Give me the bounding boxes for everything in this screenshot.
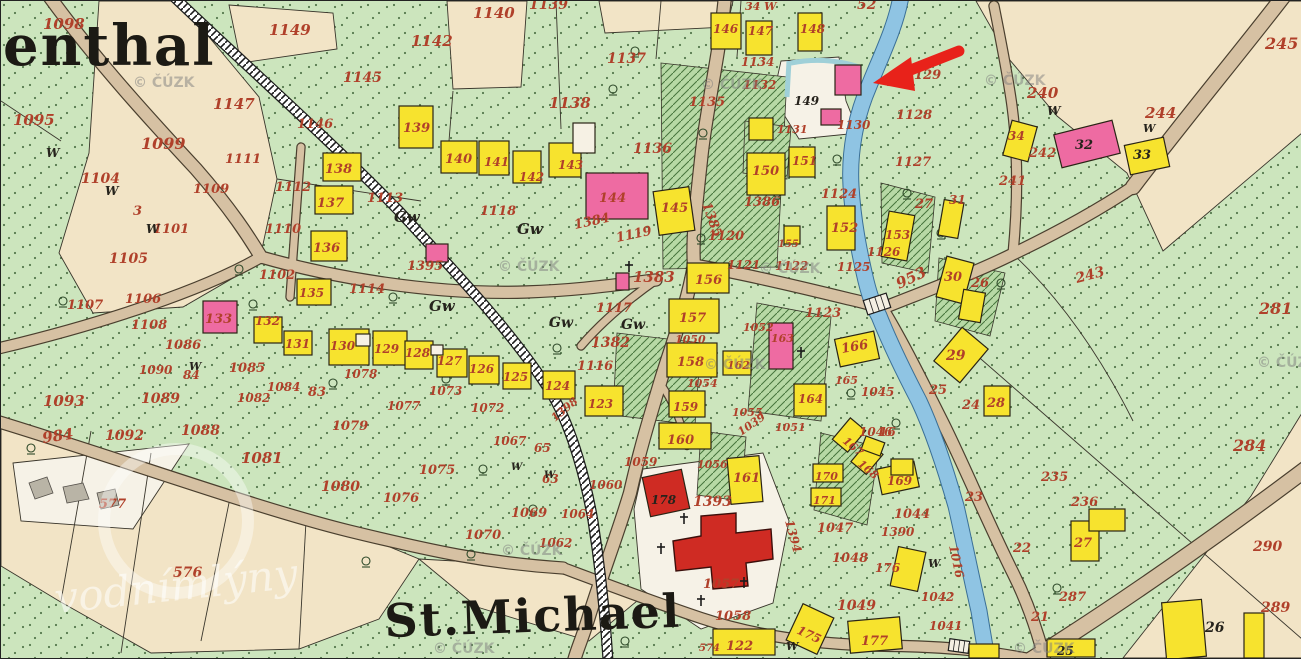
parcel-label: 1390 (881, 525, 915, 539)
parcel-label: 140 (445, 152, 472, 167)
parcel-label: 241 (998, 174, 1026, 189)
parcel-label: 1079 (332, 419, 368, 434)
copyright-watermark: © ČÚZK (759, 259, 822, 277)
parcel-label: 1082 (237, 391, 270, 405)
parcel-label: 129 (374, 342, 400, 356)
parcel-label: 176 (875, 561, 901, 575)
parcel-label: 1393 (693, 494, 732, 510)
parcel-label: Gw (621, 317, 646, 333)
parcel-label: 289 (1260, 600, 1290, 616)
building (1089, 509, 1125, 531)
parcel-label: 242 (1028, 146, 1056, 161)
parcel-label: 1145 (343, 70, 382, 86)
parcel-label: 27 (1073, 536, 1092, 551)
parcel-label: 127 (437, 354, 463, 368)
parcel-label: 144 (599, 191, 626, 206)
parcel-label: W (511, 462, 524, 473)
parcel-label: 1105 (109, 251, 148, 267)
parcel-label: 1128 (896, 108, 932, 123)
parcel-label: 1059 (624, 455, 658, 469)
parcel-label: 1116 (577, 359, 613, 374)
parcel-label: 1085 (229, 361, 265, 376)
building (356, 334, 370, 346)
parcel-label: W (46, 146, 61, 160)
parcel-label: 1136 (633, 141, 672, 157)
parcel-label: W (786, 640, 800, 653)
parcel-label: 26 (970, 276, 989, 291)
parcel-label: 1086 (165, 338, 201, 353)
parcel-label: 1124 (821, 187, 857, 202)
parcel-label: 1127 (895, 155, 931, 170)
building (969, 644, 999, 658)
parcel-label: 1055 (732, 406, 763, 419)
parcel-label: 1140 (473, 4, 515, 22)
parcel-label: 1057 (703, 577, 739, 592)
parcel-label: 3 (133, 204, 142, 219)
parcel-label: W (105, 184, 120, 198)
parcel-label: 1113 (367, 191, 403, 206)
parcel-label: 28 (986, 396, 1005, 411)
parcel-label: 1147 (213, 95, 255, 113)
parcel-label: 1056 (697, 458, 728, 471)
parcel-label: W (189, 360, 203, 373)
parcel-label: 141 (484, 155, 509, 169)
copyright-watermark: © ČÚZK (701, 75, 764, 93)
parcel-label: 178 (651, 493, 677, 507)
parcel-label: 1080 (321, 479, 360, 495)
parcel-label: 1112 (275, 180, 311, 195)
parcel-label: 1130 (837, 118, 871, 132)
parcel-label: 65 (534, 441, 551, 455)
parcel-label: 1117 (596, 301, 632, 316)
parcel-label: W (1047, 104, 1062, 118)
parcel-label: 161 (733, 471, 760, 486)
parcel-label: 145 (661, 201, 688, 216)
building (1244, 613, 1264, 658)
parcel-label: 165 (835, 374, 858, 387)
parcel-label: 148 (800, 22, 826, 36)
parcel-label: 126 (469, 362, 495, 376)
parcel-label: 131 (285, 337, 310, 351)
parcel-label: 33 (1133, 148, 1151, 163)
parcel-label: 130 (330, 339, 356, 353)
parcel-label: 1114 (349, 282, 385, 297)
parcel-label: 26 (1204, 620, 1225, 636)
parcel-label: 31 (949, 193, 966, 207)
parcel-label: 149 (794, 94, 820, 108)
parcel-label: 143 (558, 158, 583, 172)
parcel-label: 1042 (921, 590, 954, 604)
parcel-label: 1045 (861, 385, 894, 399)
building (891, 459, 913, 475)
parcel-label: 1102 (259, 268, 295, 283)
parcel-label: 1135 (689, 95, 725, 110)
parcel-label: 1142 (411, 32, 453, 50)
place-name-label: St.Michael (383, 584, 682, 648)
building (959, 289, 986, 322)
parcel-label: 152 (831, 221, 858, 236)
parcel-label: 1077 (387, 399, 421, 413)
parcel-label: 236 (1070, 495, 1098, 510)
parcel-label: 1118 (480, 204, 516, 219)
parcel-label: 30 (944, 270, 962, 285)
parcel-label: 177 (861, 634, 888, 649)
building (749, 118, 773, 140)
parcel-label: 32 (1075, 138, 1093, 153)
parcel-label: 128 (405, 346, 431, 360)
parcel-label: 155 (778, 239, 799, 250)
building (1162, 599, 1207, 658)
parcel-label: 1106 (125, 292, 161, 307)
parcel-label: 1139 (529, 1, 568, 13)
parcel-label: 1060 (589, 478, 623, 492)
parcel-label: 1070 (465, 528, 501, 543)
parcel-label: 1146 (297, 117, 333, 132)
parcel-label: 574 (699, 643, 720, 654)
building (573, 123, 595, 153)
parcel-label: 21 (1030, 610, 1049, 625)
parcel-label: 1095 (13, 111, 55, 129)
parcel-label: 1073 (429, 384, 462, 398)
parcel-label: 1044 (894, 507, 930, 522)
map-canvas[interactable]: 1098109510991104114711491111110911021112… (1, 1, 1301, 658)
parcel-label: 158 (677, 355, 704, 370)
parcel-label: 142 (519, 170, 544, 184)
parcel-label: 1111 (225, 152, 261, 167)
parcel-label: 1126 (867, 245, 901, 259)
place-name-label: enthal (3, 13, 215, 79)
parcel-label: W (928, 557, 942, 570)
parcel-label: 235 (1040, 470, 1068, 485)
copyright-watermark: © ČÚZK (433, 639, 496, 657)
parcel-label: 1049 (837, 598, 876, 614)
parcel-label: 1383 (633, 268, 675, 286)
parcel-label: 133 (205, 312, 232, 327)
historical-map-viewer[interactable]: 1098109510991104114711491111110911021112… (0, 0, 1301, 659)
building (835, 65, 861, 95)
parcel-label: 1090 (139, 363, 173, 377)
parcel-label: 171 (813, 494, 836, 507)
parcel-label: 146 (713, 22, 739, 36)
parcel-label: 1123 (805, 306, 841, 321)
parcel-label: 1054 (687, 377, 718, 390)
parcel-label: 132 (255, 314, 280, 328)
parcel-label: 123 (588, 397, 613, 411)
parcel-label: 157 (679, 311, 706, 326)
parcel-label: 1076 (383, 491, 419, 506)
parcel-label: 244 (1144, 104, 1176, 122)
parcel-label: 147 (748, 24, 774, 38)
parcel-label: 153 (885, 228, 910, 242)
parcel-label: 137 (317, 196, 344, 211)
building (616, 273, 629, 290)
parcel-label: 83 (308, 385, 326, 400)
parcel-label: 29 (945, 348, 966, 364)
parcel-label: 139 (403, 121, 430, 136)
parcel-label: W (544, 470, 557, 481)
parcel-label: 1067 (493, 434, 527, 448)
parcel-label: Gw (517, 220, 544, 238)
parcel-label: 1395 (407, 259, 443, 274)
parcel-label: 245 (1264, 34, 1298, 53)
parcel-label: 1121 (727, 258, 760, 272)
parcel-label: 23 (964, 490, 983, 505)
parcel-label: 1110 (265, 222, 301, 237)
copyright-watermark: © ČÚZK (498, 257, 561, 275)
parcel-label: 1078 (344, 367, 378, 381)
parcel-label: 1125 (837, 260, 870, 274)
parcel-label: 135 (299, 286, 324, 300)
copyright-watermark: © ČÚZK (984, 71, 1047, 89)
parcel-label: 1052 (743, 321, 774, 334)
copyright-watermark: © ČÚZK (704, 355, 767, 373)
parcel-label: 150 (752, 164, 779, 179)
parcel-label: Gw (549, 315, 574, 331)
parcel-label: 1081 (241, 449, 283, 467)
parcel-label: 1093 (43, 392, 85, 410)
parcel-label: 1050 (675, 333, 706, 346)
parcel-label: W (146, 222, 161, 236)
parcel-label: 1064 (561, 507, 594, 521)
parcel-label: 1382 (591, 335, 630, 351)
parcel-label: 281 (1258, 299, 1292, 318)
parcel-label: 25 (928, 383, 947, 398)
copyright-watermark: © ČÚZK (1013, 639, 1076, 657)
parcel-label: 159 (673, 400, 699, 414)
parcel-label: 1072 (471, 401, 504, 415)
parcel-label: 34 (1008, 129, 1025, 143)
parcel-label: 287 (1058, 590, 1086, 605)
parcel-label: 1089 (141, 391, 180, 407)
parcel-label: 1084 (267, 380, 300, 394)
parcel-label: 160 (667, 433, 694, 448)
parcel-label: 1131 (777, 123, 808, 136)
copyright-watermark: © ČÚZK (133, 73, 196, 91)
parcel-label: 122 (726, 639, 753, 654)
parcel-label: W (1143, 122, 1157, 135)
copyright-watermark: © ČÚZK (501, 541, 564, 559)
parcel-label: 169 (887, 474, 913, 488)
parcel-label: 124 (545, 379, 570, 393)
parcel-label: 170 (815, 470, 838, 483)
parcel-label: 1075 (419, 463, 455, 478)
parcel-label: 27 (914, 197, 933, 212)
parcel-label: 1092 (105, 428, 144, 444)
parcel-label: 1109 (193, 182, 229, 197)
parcel-label: 164 (798, 392, 823, 406)
parcel-label: 1048 (832, 551, 868, 566)
parcel-label: 1138 (549, 94, 591, 112)
parcel-label: 1134 (741, 55, 774, 69)
copyright-watermark: © ČÚZK (1257, 353, 1301, 371)
parcel-label: 1058 (715, 609, 751, 624)
parcel-label: 1137 (607, 51, 646, 67)
parcel-label: 52 (857, 1, 877, 13)
parcel-label: 1108 (131, 318, 167, 333)
parcel-label: 1107 (67, 298, 103, 313)
parcel-label: 1069 (511, 506, 547, 521)
parcel-label: Gw (394, 208, 421, 226)
parcel-label: 138 (325, 162, 352, 177)
parcel-label: 136 (313, 241, 340, 256)
parcel-label: 290 (1252, 539, 1282, 555)
parcel-label: 1041 (929, 619, 962, 633)
parcel-label: 1088 (181, 423, 220, 439)
parcel-label: 34 W (745, 1, 778, 13)
parcel-label: 156 (695, 273, 722, 288)
parcel-label: Gw (429, 297, 456, 315)
parcel-label: 1051 (775, 421, 806, 434)
parcel-label: 22 (1012, 541, 1031, 556)
parcel-label: 125 (503, 370, 528, 384)
parcel-label: 1386 (744, 195, 780, 210)
parcel-label: 16 (879, 425, 896, 439)
parcel-label: 1099 (141, 134, 186, 153)
parcel-label: 284 (1232, 436, 1266, 455)
parcel-label: 1047 (817, 521, 853, 536)
parcel-label: 163 (771, 332, 794, 345)
parcel-label: 151 (792, 154, 817, 168)
parcel-label: 24 (961, 398, 980, 413)
parcel-label: 1149 (269, 21, 311, 39)
